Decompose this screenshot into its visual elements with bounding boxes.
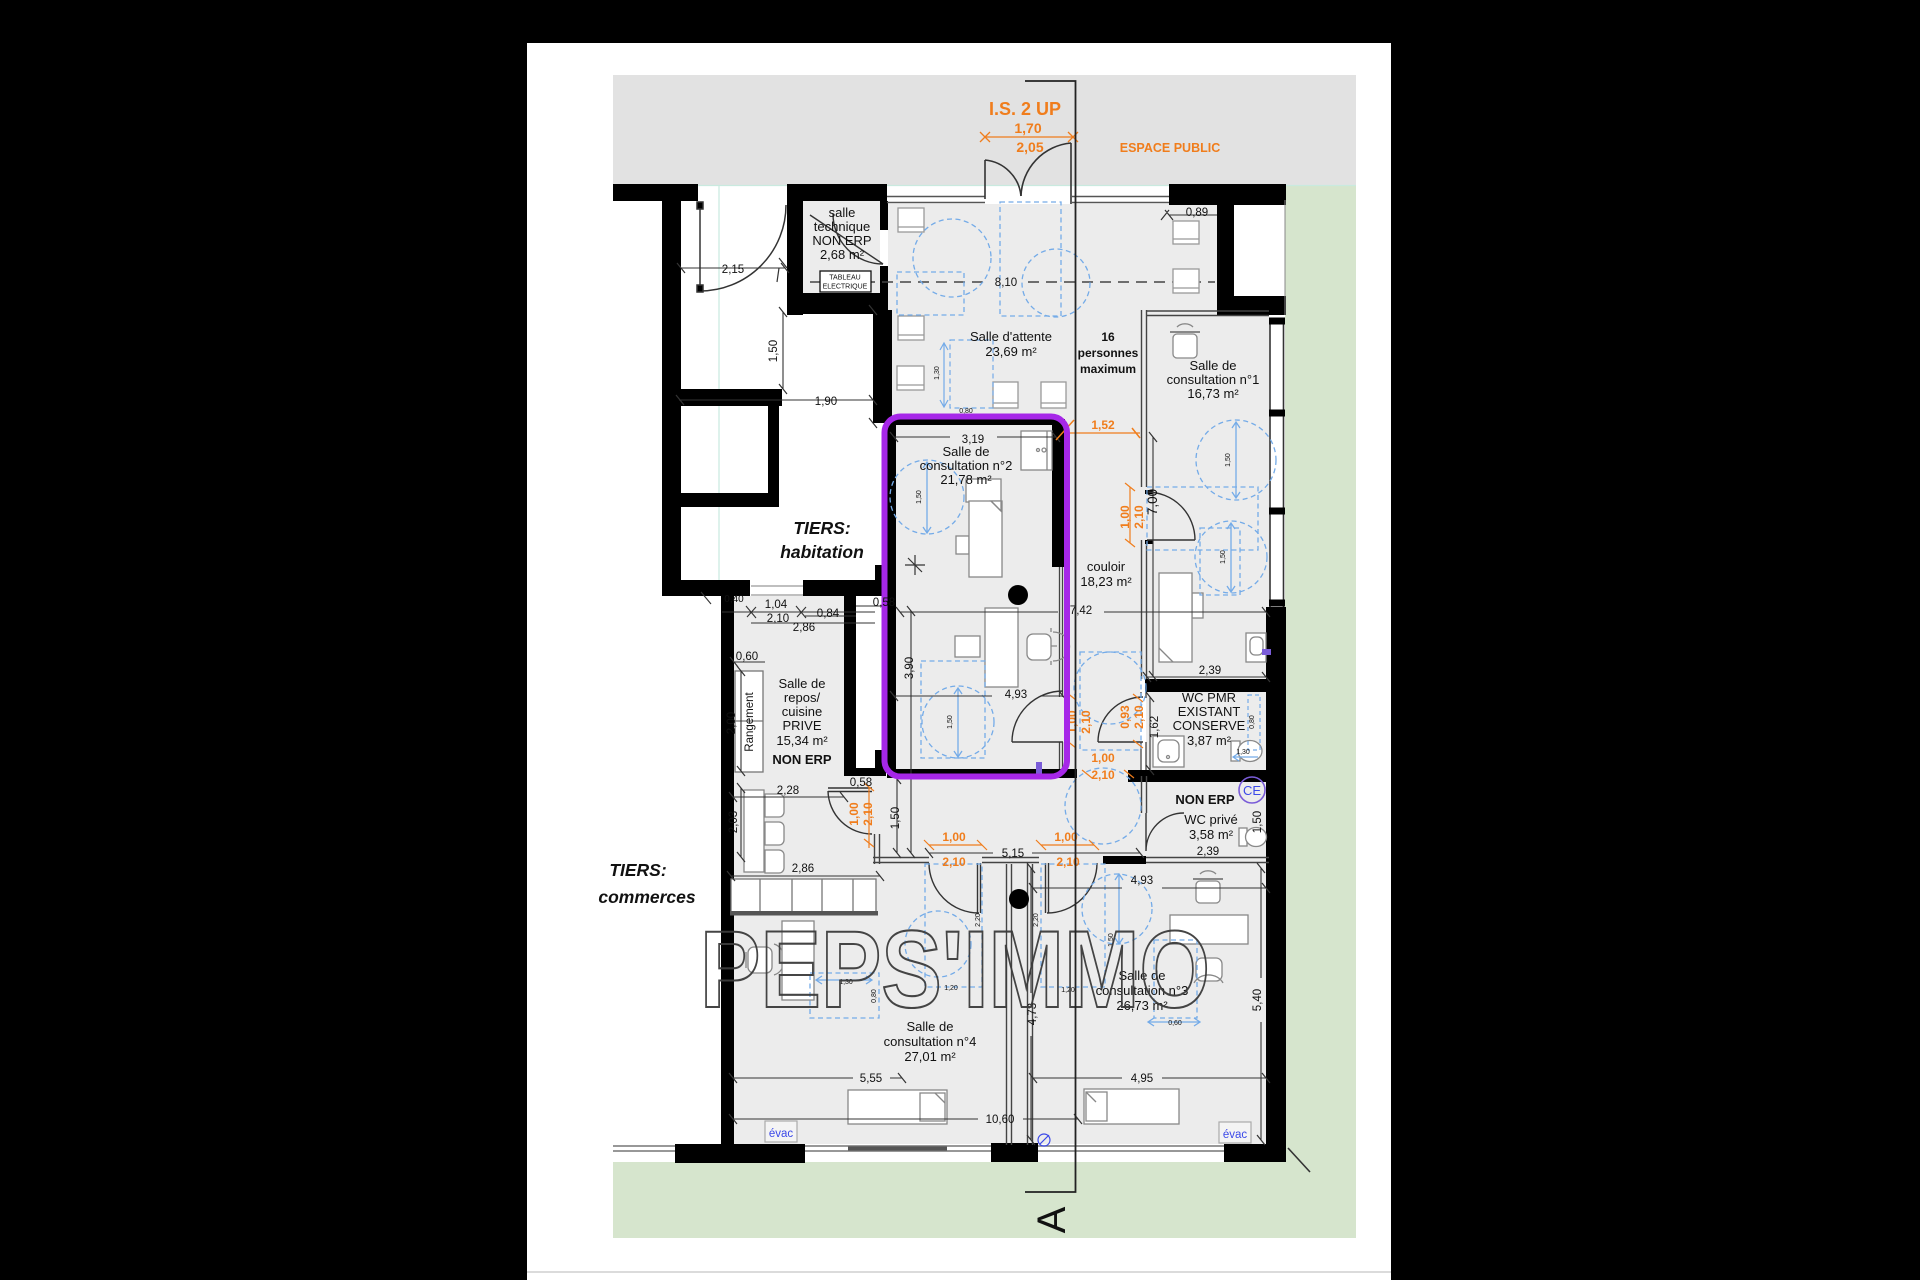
svg-text:2,39: 2,39 — [1197, 846, 1219, 858]
svg-text:cuisine: cuisine — [782, 704, 822, 719]
svg-text:salle: salle — [829, 205, 856, 220]
svg-text:0,89: 0,89 — [1186, 207, 1208, 219]
svg-text:23,69 m²: 23,69 m² — [985, 344, 1037, 359]
svg-text:1,50: 1,50 — [947, 715, 954, 729]
svg-text:1,50: 1,50 — [1220, 550, 1227, 564]
svg-text:2,10: 2,10 — [1079, 710, 1093, 734]
svg-text:EXISTANT: EXISTANT — [1178, 704, 1241, 719]
svg-text:1,70: 1,70 — [1014, 120, 1041, 136]
svg-text:1,00: 1,00 — [942, 830, 966, 844]
svg-text:0,80: 0,80 — [1249, 715, 1256, 729]
svg-text:PRIVE: PRIVE — [782, 718, 821, 733]
svg-text:1,52: 1,52 — [1091, 418, 1115, 432]
svg-text:habitation: habitation — [780, 542, 864, 562]
svg-text:16,73 m²: 16,73 m² — [1187, 386, 1239, 401]
svg-text:couloir: couloir — [1087, 559, 1126, 574]
svg-text:2,10: 2,10 — [1132, 705, 1146, 729]
svg-text:1,00: 1,00 — [1054, 830, 1078, 844]
svg-text:I.S. 2 UP: I.S. 2 UP — [989, 99, 1061, 119]
svg-text:commerces: commerces — [598, 887, 696, 907]
svg-text:évac: évac — [769, 1128, 794, 1140]
svg-text:2,10: 2,10 — [942, 855, 966, 869]
svg-text:NON ERP: NON ERP — [772, 752, 832, 767]
svg-text:1,00: 1,00 — [1091, 751, 1115, 765]
svg-text:A: A — [1030, 1206, 1074, 1233]
svg-text:2,10: 2,10 — [1132, 505, 1146, 529]
svg-text:2,00: 2,00 — [726, 712, 738, 734]
svg-text:2,15: 2,15 — [722, 264, 744, 276]
svg-text:2,05: 2,05 — [1016, 139, 1043, 155]
svg-text:15,34 m²: 15,34 m² — [776, 733, 828, 748]
svg-text:1,90: 1,90 — [815, 396, 837, 408]
svg-text:Salle de: Salle de — [1190, 358, 1237, 373]
svg-text:1,04: 1,04 — [765, 599, 788, 611]
svg-text:repos/: repos/ — [784, 690, 821, 705]
svg-text:1,62: 1,62 — [1149, 716, 1161, 738]
svg-text:ELECTRIQUE: ELECTRIQUE — [823, 284, 868, 291]
svg-text:21,78 m²: 21,78 m² — [940, 472, 992, 487]
svg-text:maximum: maximum — [1080, 362, 1136, 376]
svg-text:10,60: 10,60 — [986, 1114, 1015, 1126]
svg-text:CONSERVE: CONSERVE — [1173, 718, 1246, 733]
svg-text:WC privé: WC privé — [1184, 812, 1237, 827]
svg-text:2,39: 2,39 — [1199, 665, 1221, 677]
svg-text:3,19: 3,19 — [962, 434, 984, 446]
svg-text:0,93: 0,93 — [1118, 705, 1132, 729]
svg-text:Rangement: Rangement — [744, 691, 756, 751]
svg-text:8,10: 8,10 — [995, 277, 1017, 289]
svg-text:NON ERP: NON ERP — [812, 233, 871, 248]
svg-text:NON ERP: NON ERP — [1175, 792, 1235, 807]
svg-text:3,90: 3,90 — [904, 657, 916, 679]
svg-text:2,68 m²: 2,68 m² — [820, 247, 865, 262]
svg-text:TIERS:: TIERS: — [609, 860, 666, 880]
svg-text:2,03: 2,03 — [728, 811, 740, 833]
svg-text:1,00: 1,00 — [847, 802, 861, 826]
svg-text:2,86: 2,86 — [793, 622, 815, 634]
svg-text:7,00: 7,00 — [1145, 489, 1160, 515]
svg-text:27,01 m²: 27,01 m² — [904, 1049, 956, 1064]
svg-text:0,40: 0,40 — [724, 594, 744, 605]
svg-text:0,58: 0,58 — [873, 597, 895, 609]
svg-text:4,93: 4,93 — [1005, 689, 1027, 701]
svg-text:ESPACE PUBLIC: ESPACE PUBLIC — [1120, 141, 1220, 155]
svg-text:1,50: 1,50 — [1225, 453, 1232, 467]
svg-text:2,10: 2,10 — [1091, 768, 1115, 782]
svg-text:consultation n°4: consultation n°4 — [884, 1034, 977, 1049]
svg-text:0,58: 0,58 — [850, 777, 872, 789]
svg-text:consultation n°1: consultation n°1 — [1167, 372, 1260, 387]
svg-text:consultation n°2: consultation n°2 — [920, 458, 1013, 473]
svg-text:1,50: 1,50 — [916, 490, 923, 504]
svg-text:5,15: 5,15 — [1002, 848, 1024, 860]
svg-text:PEPS'IMMO: PEPS'IMMO — [700, 909, 1210, 1031]
svg-text:0,60: 0,60 — [736, 651, 758, 663]
svg-text:2,86: 2,86 — [792, 863, 814, 875]
svg-text:1,30: 1,30 — [934, 366, 941, 380]
svg-text:2,28: 2,28 — [777, 785, 799, 797]
svg-text:technique: technique — [814, 219, 870, 234]
svg-text:5,40: 5,40 — [1252, 989, 1264, 1011]
svg-text:7,42: 7,42 — [1070, 605, 1092, 617]
svg-text:18,23 m²: 18,23 m² — [1080, 574, 1132, 589]
svg-text:Salle d'attente: Salle d'attente — [970, 329, 1052, 344]
svg-text:1,50: 1,50 — [890, 807, 902, 829]
svg-text:2,10: 2,10 — [767, 613, 789, 625]
svg-text:Salle de: Salle de — [943, 444, 990, 459]
svg-text:TIERS:: TIERS: — [793, 518, 850, 538]
svg-text:personnes: personnes — [1078, 346, 1139, 360]
svg-text:1,50: 1,50 — [768, 340, 780, 362]
svg-text:4,93: 4,93 — [1131, 875, 1153, 887]
svg-text:Salle de: Salle de — [779, 676, 826, 691]
svg-text:1,30: 1,30 — [1236, 749, 1250, 756]
svg-text:1,00: 1,00 — [1118, 505, 1132, 529]
svg-text:TABLEAU: TABLEAU — [829, 275, 860, 282]
svg-text:5,55: 5,55 — [860, 1073, 882, 1085]
svg-text:2,10: 2,10 — [861, 802, 875, 826]
svg-text:2,10: 2,10 — [1056, 855, 1080, 869]
svg-text:évac: évac — [1223, 1129, 1248, 1141]
svg-text:0,84: 0,84 — [817, 608, 840, 620]
svg-text:WC PMR: WC PMR — [1182, 690, 1236, 705]
svg-text:3,58 m²: 3,58 m² — [1189, 827, 1234, 842]
svg-text:CE: CE — [1243, 783, 1261, 798]
svg-text:1,50: 1,50 — [1252, 811, 1264, 833]
svg-text:4,95: 4,95 — [1131, 1073, 1153, 1085]
svg-text:3,87 m²: 3,87 m² — [1187, 733, 1232, 748]
svg-text:16: 16 — [1101, 330, 1115, 344]
